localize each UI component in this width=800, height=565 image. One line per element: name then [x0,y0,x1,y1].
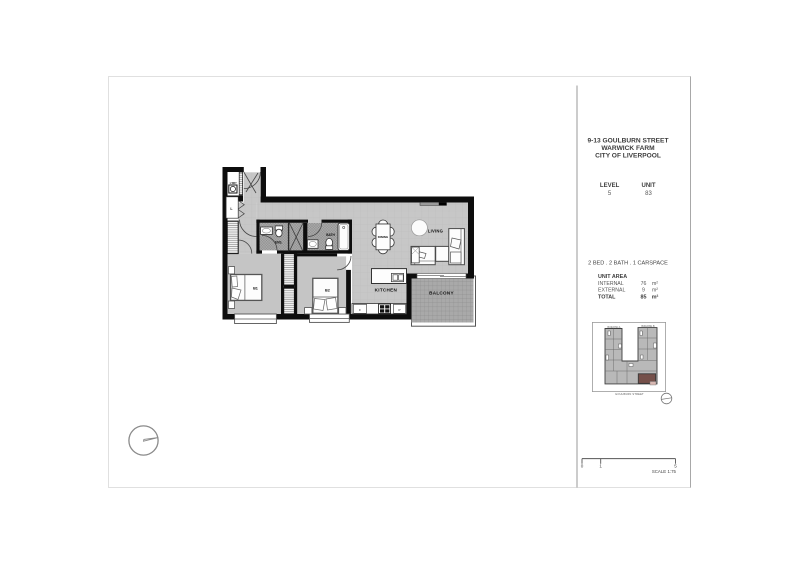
svg-text:0: 0 [581,464,584,469]
svg-text:SCALE 1:75: SCALE 1:75 [652,469,677,474]
svg-text:1: 1 [599,464,602,469]
svg-text:CITY OF LIVERPOOL: CITY OF LIVERPOOL [595,152,661,159]
svg-text:B1: B1 [253,287,258,291]
svg-text:LEVEL: LEVEL [600,183,620,189]
svg-text:5: 5 [674,464,677,469]
svg-text:EXTERNAL: EXTERNAL [598,288,626,294]
svg-text:B2: B2 [325,288,330,292]
svg-text:m²: m² [652,281,658,287]
svg-text:9-13 GOULBURN STREET: 9-13 GOULBURN STREET [588,138,669,145]
svg-text:TOTAL: TOTAL [598,295,616,301]
svg-text:BATH: BATH [326,233,335,237]
svg-text:WARWICK FARM: WARWICK FARM [601,145,655,152]
svg-text:DINING: DINING [378,235,389,239]
svg-text:76: 76 [641,281,647,287]
svg-text:GOULBURN STREET: GOULBURN STREET [615,392,644,396]
svg-text:85: 85 [641,295,647,301]
svg-text:9: 9 [642,288,645,294]
svg-text:2 BED . 2 BATH . 1 CARSPACE: 2 BED . 2 BATH . 1 CARSPACE [588,261,668,267]
svg-text:83: 83 [645,191,652,197]
svg-text:ENS.: ENS. [275,241,283,245]
svg-text:LIVING: LIVING [428,229,443,234]
svg-text:KITCHEN: KITCHEN [375,287,398,292]
svg-text:UNIT AREA: UNIT AREA [598,274,627,280]
svg-text:P: P [398,308,400,312]
svg-text:BALCONY: BALCONY [429,291,454,296]
svg-text:m²: m² [652,295,659,301]
svg-text:F: F [359,308,361,312]
svg-text:m²: m² [652,288,658,294]
svg-text:UNIT: UNIT [642,183,656,189]
svg-text:INTERNAL: INTERNAL [598,281,624,287]
